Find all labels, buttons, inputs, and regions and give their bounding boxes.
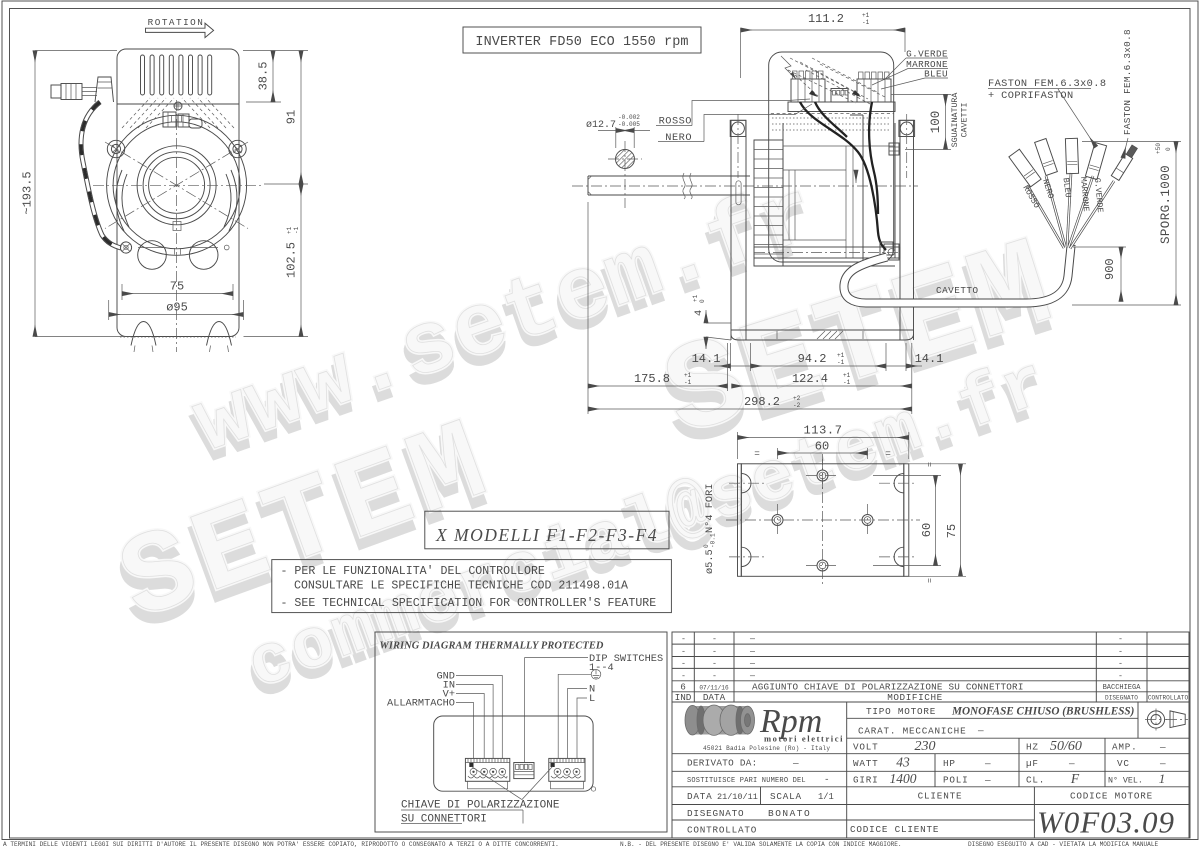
svg-text:111.2: 111.2 <box>808 12 844 26</box>
svg-text:ø12.7: ø12.7 <box>586 120 616 131</box>
svg-text:-0.002: -0.002 <box>618 114 640 121</box>
svg-text:CONTROLLATO: CONTROLLATO <box>1148 695 1189 702</box>
svg-text:—: — <box>749 635 756 644</box>
svg-text:MODIFICHE: MODIFICHE <box>887 692 943 703</box>
svg-text:43: 43 <box>896 755 910 770</box>
svg-text:—: — <box>1159 742 1166 753</box>
svg-text:HP: HP <box>943 758 956 769</box>
svg-text:0: 0 <box>699 299 706 303</box>
svg-text:W0F03.09: W0F03.09 <box>1037 805 1175 840</box>
svg-text:µF: µF <box>1026 758 1039 769</box>
svg-text:+1: +1 <box>684 372 692 379</box>
svg-text:+1: +1 <box>286 226 293 234</box>
svg-text:CODICE CLIENTE: CODICE CLIENTE <box>850 824 939 835</box>
svg-text:175.8: 175.8 <box>634 372 670 386</box>
svg-text:N°4 FORI: N°4 FORI <box>704 484 716 533</box>
svg-text:-: - <box>1118 672 1123 681</box>
svg-text:-: - <box>1118 648 1123 657</box>
svg-text:SGUAINATURA: SGUAINATURA <box>951 93 960 148</box>
svg-text:CAVETTI: CAVETTI <box>961 103 970 138</box>
svg-text:1--4: 1--4 <box>589 662 614 674</box>
svg-text:60: 60 <box>920 523 934 537</box>
svg-text:=: = <box>926 578 935 583</box>
svg-text:CODICE MOTORE: CODICE MOTORE <box>1070 791 1153 802</box>
svg-text:WATT: WATT <box>853 758 879 769</box>
svg-text:230: 230 <box>915 739 936 754</box>
svg-text:-1: -1 <box>843 379 851 386</box>
svg-text:+ COPRIFASTON: + COPRIFASTON <box>988 90 1074 102</box>
svg-text:DATA: DATA <box>703 692 726 703</box>
svg-text:—: — <box>749 672 756 681</box>
svg-text:4: 4 <box>693 310 705 316</box>
svg-text:N.B. - DEL PRESENTE DISEGNO E': N.B. - DEL PRESENTE DISEGNO E' VALIDA SO… <box>620 841 902 848</box>
svg-text:-: - <box>1118 660 1123 669</box>
svg-text:21/10/11: 21/10/11 <box>717 792 758 802</box>
svg-text:ROTATION: ROTATION <box>148 17 205 28</box>
svg-text:SPORG.1000: SPORG.1000 <box>1159 165 1173 244</box>
svg-text:113.7: 113.7 <box>803 424 842 438</box>
svg-text:-: - <box>681 660 686 669</box>
svg-text:-1: -1 <box>293 226 300 234</box>
svg-text:—: — <box>984 758 991 769</box>
svg-text:+1: +1 <box>862 12 870 19</box>
svg-text:+1: +1 <box>692 294 699 302</box>
svg-text:SCALA: SCALA <box>770 791 802 802</box>
svg-text:14.1: 14.1 <box>915 352 944 366</box>
svg-text:75: 75 <box>170 280 184 294</box>
svg-text:0: 0 <box>1165 147 1172 151</box>
svg-text:=: = <box>885 448 891 459</box>
svg-text:DISEGNATO: DISEGNATO <box>687 808 744 819</box>
svg-text:-: - <box>681 648 686 657</box>
svg-text:ROSSO: ROSSO <box>1020 184 1040 210</box>
svg-text:+1: +1 <box>837 352 845 359</box>
svg-text:—: — <box>749 648 756 657</box>
svg-text:INVERTER FD50 ECO 1550 rpm: INVERTER FD50 ECO 1550 rpm <box>475 35 688 50</box>
svg-text:-1: -1 <box>837 359 845 366</box>
svg-text:WIRING DIAGRAM THERMALLY PROT: WIRING DIAGRAM THERMALLY PROTECTED <box>380 641 604 652</box>
svg-text:+50: +50 <box>1155 143 1162 154</box>
svg-text:FASTON FEM.6.3x0.8: FASTON FEM.6.3x0.8 <box>1122 29 1133 135</box>
svg-text:ø95: ø95 <box>166 301 188 315</box>
svg-text:GIRI: GIRI <box>853 774 879 785</box>
svg-text:TIPO MOTORE: TIPO MOTORE <box>866 706 936 717</box>
svg-text:-: - <box>712 648 717 657</box>
svg-text:DISEGNATO: DISEGNATO <box>1105 695 1138 702</box>
svg-text:-: - <box>712 635 717 644</box>
svg-text:MONOFASE CHIUSO (BRUSHLESS): MONOFASE CHIUSO (BRUSHLESS) <box>951 706 1135 718</box>
svg-text:IND: IND <box>675 692 692 703</box>
svg-text:—: — <box>1068 758 1075 769</box>
svg-text:1400: 1400 <box>890 771 917 786</box>
svg-text:-: - <box>681 672 686 681</box>
svg-text:60: 60 <box>815 440 829 454</box>
svg-text:—: — <box>792 758 799 769</box>
svg-text:298.2: 298.2 <box>744 395 780 409</box>
svg-text:HZ: HZ <box>1026 742 1039 753</box>
svg-text:900: 900 <box>1103 258 1117 280</box>
svg-text:VC: VC <box>1117 758 1130 769</box>
svg-text:F: F <box>1070 771 1080 786</box>
svg-text:+2: +2 <box>793 395 801 402</box>
svg-text:1: 1 <box>1159 771 1166 786</box>
svg-text:-: - <box>824 774 830 785</box>
svg-text:X MODELLI F1-F2-F3-F4: X MODELLI F1-F2-F3-F4 <box>435 525 658 545</box>
svg-text:CONSULTARE LE SPECIFICHE TECNI: CONSULTARE LE SPECIFICHE TECNICHE COD 21… <box>294 580 628 593</box>
svg-text:CL.: CL. <box>1026 774 1045 785</box>
svg-text:ALLARMTACHO: ALLARMTACHO <box>387 698 455 710</box>
svg-text:122.4: 122.4 <box>792 372 828 386</box>
svg-text:91: 91 <box>285 110 299 124</box>
svg-text:14.1: 14.1 <box>692 352 721 366</box>
svg-text:1/1: 1/1 <box>818 792 834 802</box>
svg-text:50/60: 50/60 <box>1050 739 1082 754</box>
svg-text:75: 75 <box>945 524 959 538</box>
svg-text:94.2: 94.2 <box>798 352 827 366</box>
svg-text:VOLT: VOLT <box>853 742 879 753</box>
svg-text:~193.5: ~193.5 <box>21 171 35 214</box>
svg-text:100: 100 <box>929 111 943 134</box>
svg-text:—: — <box>1159 758 1166 769</box>
svg-text:—: — <box>749 660 756 669</box>
svg-text:N° VEL.: N° VEL. <box>1108 776 1143 785</box>
svg-text:L: L <box>589 693 595 705</box>
svg-text:CAVETTO: CAVETTO <box>936 285 979 296</box>
svg-text:BONATO: BONATO <box>768 808 811 819</box>
svg-text:-1: -1 <box>862 19 870 26</box>
svg-text:=: = <box>926 462 935 467</box>
svg-text:CONTROLLATO: CONTROLLATO <box>687 824 757 835</box>
svg-text:NERO: NERO <box>665 132 692 144</box>
svg-text:38.5: 38.5 <box>257 62 271 91</box>
svg-text:-0.1: -0.1 <box>710 533 717 548</box>
svg-text:CARAT. MECCANICHE: CARAT. MECCANICHE <box>858 726 966 737</box>
svg-text:=: = <box>754 448 760 459</box>
svg-text:BACCHIEGA: BACCHIEGA <box>1103 684 1142 692</box>
svg-text:DISEGNO ESEGUITO A CAD - VIETA: DISEGNO ESEGUITO A CAD - VIETATA LA MODI… <box>968 841 1158 848</box>
svg-text:-0.005: -0.005 <box>618 121 640 128</box>
svg-text:BLEU: BLEU <box>1061 177 1072 198</box>
svg-text:motori elettrici: motori elettrici <box>764 734 844 744</box>
svg-text:102.5: 102.5 <box>285 242 299 278</box>
svg-text:DERIVATO DA:: DERIVATO DA: <box>687 758 758 769</box>
svg-text:-: - <box>1118 635 1123 644</box>
svg-text:-1: -1 <box>684 379 692 386</box>
svg-text:—: — <box>984 774 991 785</box>
svg-text:- SEE TECHNICAL SPECIFICATION: - SEE TECHNICAL SPECIFICATION FOR CONTRO… <box>281 597 657 610</box>
svg-text:-2: -2 <box>793 402 801 409</box>
svg-text:ø5.5: ø5.5 <box>704 549 716 574</box>
svg-text:A TERMINI DELLE VIGENTI LEGGI: A TERMINI DELLE VIGENTI LEGGI SUI DIRITT… <box>3 841 559 848</box>
svg-text:—: — <box>977 725 984 736</box>
svg-text:G.VERDE: G.VERDE <box>1092 177 1104 213</box>
svg-text:NERO: NERO <box>1040 178 1055 200</box>
svg-text:45021 Badia Polesine (Ro) - It: 45021 Badia Polesine (Ro) - Italy <box>703 745 830 752</box>
svg-text:- PER LE FUNZIONALITA' DEL CON: - PER LE FUNZIONALITA' DEL CONTROLLORE <box>281 565 545 578</box>
svg-text:POLI: POLI <box>943 774 969 785</box>
svg-text:-: - <box>712 660 717 669</box>
svg-text:DATA: DATA <box>687 791 713 802</box>
svg-text:AMP.: AMP. <box>1112 742 1138 753</box>
svg-text:07/11/16: 07/11/16 <box>699 684 729 691</box>
svg-text:CLIENTE: CLIENTE <box>918 791 963 802</box>
svg-text:SOSTITUISCE PARI NUMERO DEL: SOSTITUISCE PARI NUMERO DEL <box>687 777 806 785</box>
svg-text:+1: +1 <box>843 372 851 379</box>
svg-text:-: - <box>681 635 686 644</box>
svg-text:MARRONE: MARRONE <box>1078 176 1090 212</box>
svg-text:-: - <box>712 672 717 681</box>
